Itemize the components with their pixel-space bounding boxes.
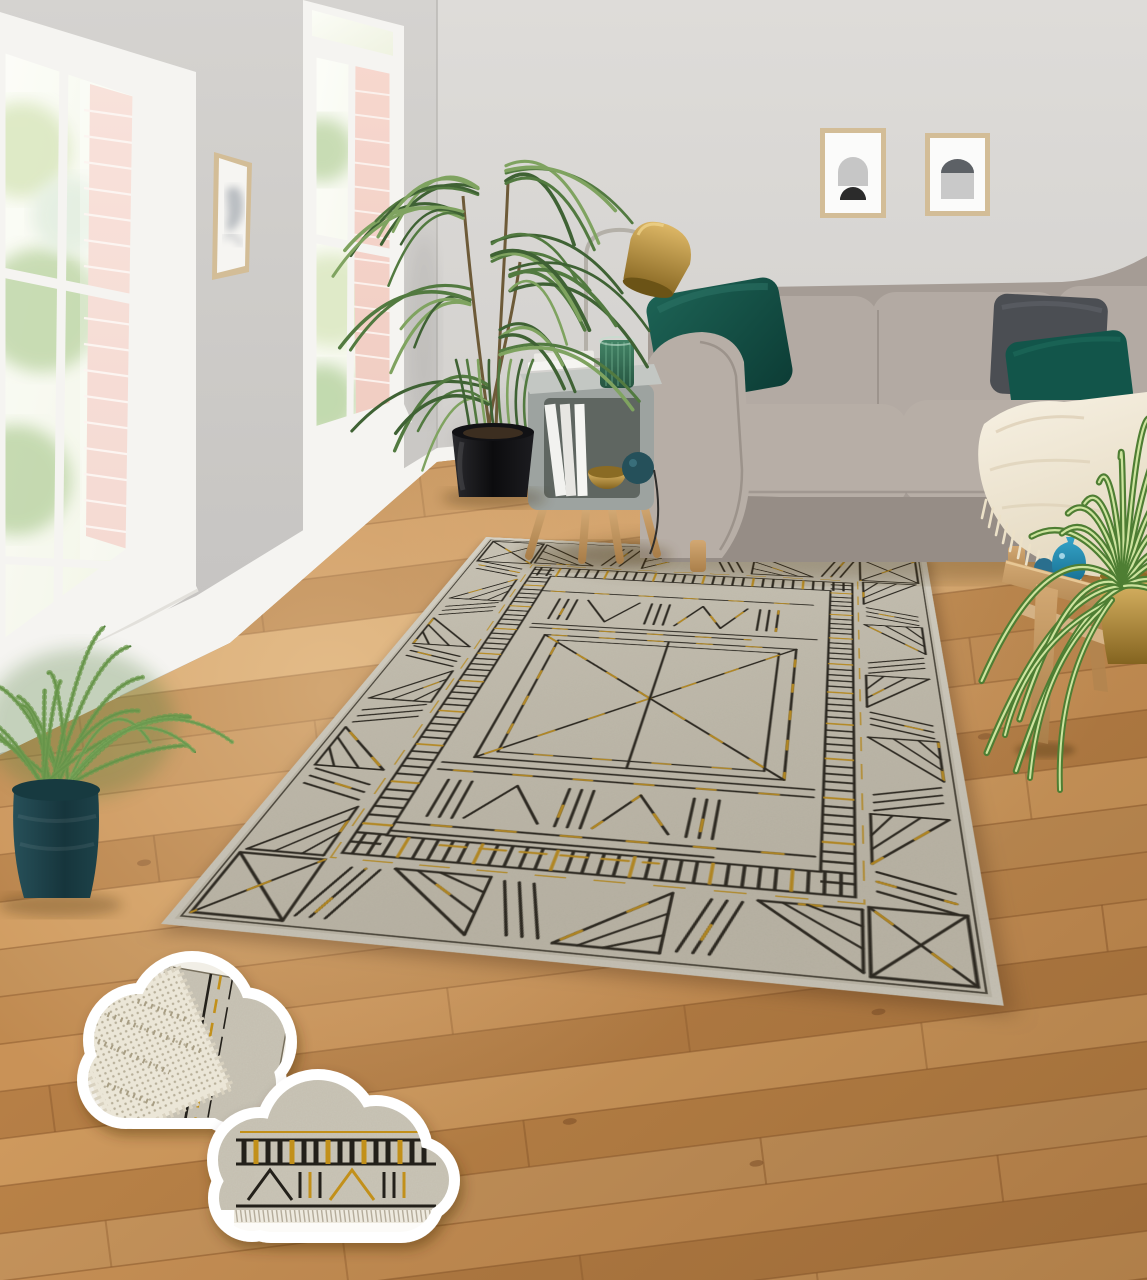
teal-ornament <box>622 452 654 484</box>
sofa-leg <box>690 540 706 572</box>
green-glass-vase <box>600 337 634 388</box>
living-room-product-photo <box>0 0 1147 1280</box>
foreground <box>0 0 1147 1280</box>
fern-plant <box>0 626 232 917</box>
